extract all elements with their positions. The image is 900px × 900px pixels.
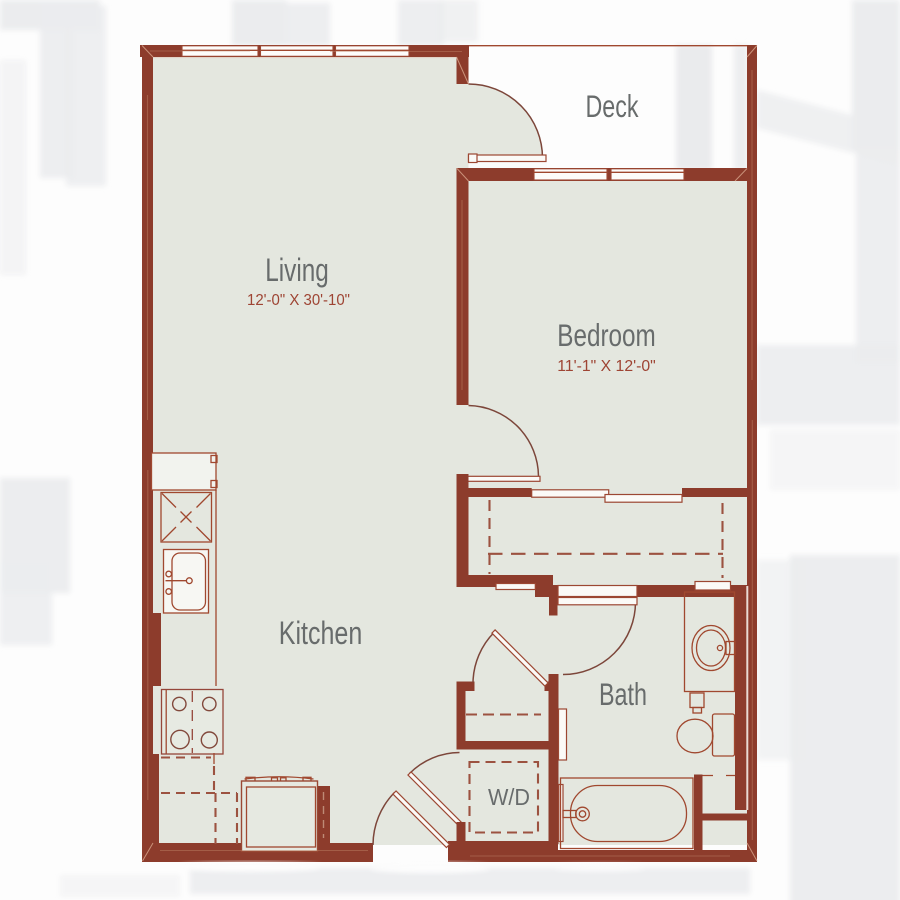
svg-text:11'-1" X 12'-0": 11'-1" X 12'-0" [557, 358, 656, 375]
svg-text:Bedroom: Bedroom [557, 317, 656, 353]
svg-text:12'-0" X 30'-10": 12'-0" X 30'-10" [247, 292, 350, 309]
svg-text:Bath: Bath [599, 676, 647, 712]
svg-text:Living: Living [265, 252, 329, 288]
svg-text:Deck: Deck [586, 88, 639, 124]
svg-text:Kitchen: Kitchen [279, 615, 363, 651]
svg-text:W/D: W/D [488, 784, 530, 810]
